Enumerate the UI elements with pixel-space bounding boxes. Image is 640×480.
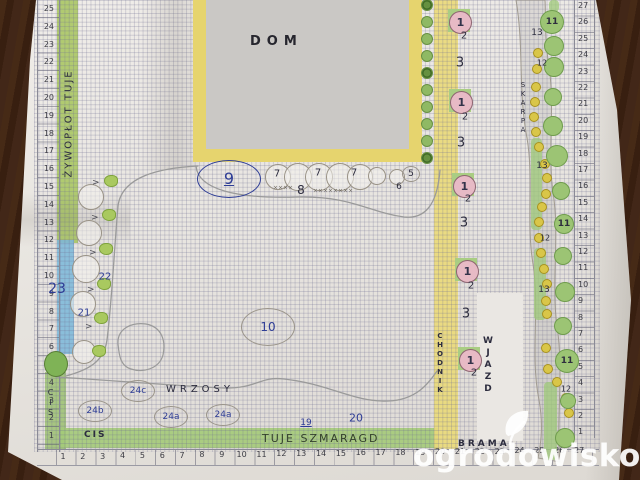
plan-annotation: 3 bbox=[457, 136, 465, 151]
left-ruler-number: 17 bbox=[38, 146, 54, 155]
plan-annotation: 19 bbox=[300, 418, 311, 428]
plant-blob bbox=[104, 175, 118, 187]
right-ruler-number: 25 bbox=[578, 34, 591, 43]
hedge-dot bbox=[421, 33, 433, 45]
skarpa-shrub bbox=[554, 247, 572, 265]
bottom-ruler-number: 12 bbox=[275, 449, 287, 458]
arrow-mark: > bbox=[91, 213, 99, 223]
skarpa-shrub bbox=[543, 116, 563, 136]
skarpa-dot bbox=[542, 309, 552, 319]
shrub-outline bbox=[368, 167, 386, 185]
plan-annotation: 20 bbox=[349, 412, 363, 425]
wrzosy-label: WRZOSY bbox=[166, 384, 234, 395]
plan-annotation: ×××××××× bbox=[313, 188, 353, 195]
skarpa-dot bbox=[533, 48, 543, 58]
bottom-ruler-number: 10 bbox=[236, 450, 248, 459]
plan-markers-layer: 2524232221201918171615141312111098765432… bbox=[0, 0, 640, 480]
plan-annotation: 7 bbox=[315, 168, 321, 179]
plan-annotation: 24a bbox=[206, 404, 240, 426]
left-ruler-number: 19 bbox=[38, 111, 54, 120]
right-ruler-number: 20 bbox=[578, 116, 591, 125]
right-ruler-number: 3 bbox=[578, 395, 591, 404]
shrub-outline bbox=[76, 220, 102, 246]
skarpa-shrub bbox=[544, 36, 564, 56]
plan-annotation: 12 bbox=[561, 385, 571, 394]
watermark-text: ogrodowisko bbox=[413, 438, 640, 474]
left-ruler-number: 8 bbox=[38, 307, 54, 316]
right-ruler-number: 4 bbox=[578, 378, 591, 387]
shrub-outline bbox=[72, 255, 100, 283]
skarpa-label: SKARPA bbox=[519, 81, 527, 135]
plan-annotation: 24c bbox=[121, 380, 155, 402]
skarpa-dot bbox=[536, 248, 546, 258]
right-ruler-number: 19 bbox=[578, 132, 591, 141]
skarpa-dot bbox=[564, 408, 574, 418]
left-ruler-number: 14 bbox=[38, 200, 54, 209]
right-ruler-number: 24 bbox=[578, 50, 591, 59]
skarpa-shrub bbox=[552, 182, 570, 200]
left-ruler-number: 18 bbox=[38, 129, 54, 138]
plant-blob bbox=[94, 312, 108, 324]
plan-annotation: 2 bbox=[461, 31, 467, 42]
cis-strip-label: CIS bbox=[84, 430, 106, 440]
skarpa-shrub: 11 bbox=[555, 349, 579, 373]
right-ruler-number: 8 bbox=[578, 313, 591, 322]
skarpa-dot bbox=[539, 264, 549, 274]
bottom-ruler-number: 17 bbox=[375, 448, 387, 457]
plan-annotation: 13 bbox=[538, 285, 549, 295]
plan-annotation: 2 bbox=[468, 281, 474, 292]
plant-blob bbox=[92, 345, 106, 357]
bottom-ruler-number: 14 bbox=[315, 449, 327, 458]
plan-annotation: 24a bbox=[154, 406, 188, 428]
arrow-mark: > bbox=[87, 285, 95, 295]
left-ruler-number: 20 bbox=[38, 93, 54, 102]
right-ruler-number: 21 bbox=[578, 99, 591, 108]
right-ruler-number: 18 bbox=[578, 149, 591, 158]
paper-sheet: DOM 252423222120191817161514131211109876… bbox=[0, 0, 640, 480]
hedge-dot bbox=[421, 135, 433, 147]
left-ruler-number: 13 bbox=[38, 218, 54, 227]
left-ruler-number: 12 bbox=[38, 235, 54, 244]
skarpa-dot bbox=[541, 189, 551, 199]
skarpa-shrub bbox=[546, 145, 568, 167]
bottom-ruler-number: 9 bbox=[216, 450, 228, 459]
plan-annotation: 23 bbox=[48, 281, 66, 297]
plan-annotation: 10 bbox=[241, 308, 295, 346]
shrub-outline bbox=[78, 184, 104, 210]
right-ruler-number: 2 bbox=[578, 411, 591, 420]
right-ruler-number: 9 bbox=[578, 296, 591, 305]
bottom-ruler-number: 7 bbox=[176, 451, 188, 460]
plant-blob bbox=[102, 209, 116, 221]
bottom-ruler-number: 13 bbox=[295, 449, 307, 458]
left-ruler-number: 10 bbox=[38, 271, 54, 280]
plan-annotation: 8 bbox=[297, 183, 305, 197]
left-ruler-number: 23 bbox=[38, 40, 54, 49]
photo-garden-plan: DOM 252423222120191817161514131211109876… bbox=[0, 0, 640, 480]
plan-annotation: 2 bbox=[471, 368, 477, 379]
plan-annotation: 7 bbox=[351, 168, 357, 179]
plan-annotation: 6 bbox=[396, 182, 402, 192]
cis-vertical-label: CIS bbox=[46, 388, 55, 418]
wjazd-label: WJAZD bbox=[483, 336, 493, 396]
hedge-dot bbox=[421, 50, 433, 62]
hedge-left-label: ŻYWOPŁOT TUJE bbox=[64, 39, 75, 209]
bottom-ruler-number: 4 bbox=[117, 451, 129, 460]
arrow-mark: > bbox=[85, 322, 93, 332]
skarpa-shrub bbox=[544, 88, 562, 106]
hedge-dot bbox=[421, 152, 433, 164]
plan-annotation: 3 bbox=[460, 216, 468, 231]
plan-annotation: 2 bbox=[462, 112, 468, 123]
left-ruler-number: 7 bbox=[38, 324, 54, 333]
left-ruler-number: 24 bbox=[38, 22, 54, 31]
skarpa-shrub bbox=[555, 282, 575, 302]
bottom-ruler-number: 18 bbox=[394, 448, 406, 457]
left-ruler-number: 16 bbox=[38, 164, 54, 173]
bottom-ruler-number: 15 bbox=[335, 449, 347, 458]
plan-annotation: 12 bbox=[540, 234, 550, 243]
chodnik-label: CHODNIK bbox=[436, 332, 444, 395]
left-ruler-number: 6 bbox=[38, 342, 54, 351]
left-ruler-number: 4 bbox=[38, 378, 54, 387]
plant-blob bbox=[99, 243, 113, 255]
hedge-dot bbox=[421, 84, 433, 96]
left-ruler-number: 22 bbox=[38, 57, 54, 66]
plan-annotation: 13 bbox=[536, 161, 547, 171]
plan-annotation: 3 bbox=[456, 56, 464, 71]
left-ruler-number: 21 bbox=[38, 75, 54, 84]
right-ruler-number: 13 bbox=[578, 231, 591, 240]
plan-annotation: 2 bbox=[465, 194, 471, 205]
plan-annotation: 9 bbox=[197, 160, 261, 198]
right-ruler-number: 7 bbox=[578, 329, 591, 338]
skarpa-dot bbox=[543, 364, 553, 374]
skarpa-dot bbox=[529, 112, 539, 122]
right-ruler-number: 10 bbox=[578, 280, 591, 289]
right-ruler-number: 12 bbox=[578, 247, 591, 256]
bottom-ruler-number: 1 bbox=[57, 452, 69, 461]
skarpa-shrub: 11 bbox=[554, 214, 574, 234]
right-ruler-number: 23 bbox=[578, 67, 591, 76]
green-bush bbox=[44, 351, 68, 377]
plan-annotation: 5 bbox=[402, 166, 420, 182]
skarpa-shrub: 11 bbox=[540, 10, 564, 34]
skarpa-dot bbox=[537, 202, 547, 212]
plan-annotation: 12 bbox=[537, 59, 547, 68]
bottom-ruler-number: 11 bbox=[256, 450, 268, 459]
skarpa-dot bbox=[531, 82, 541, 92]
skarpa-dot bbox=[541, 343, 551, 353]
skarpa-dot bbox=[542, 173, 552, 183]
bottom-ruler-number: 3 bbox=[97, 452, 109, 461]
plan-annotation: ×××× bbox=[273, 185, 293, 192]
right-ruler-number: 16 bbox=[578, 181, 591, 190]
left-ruler-number: 15 bbox=[38, 182, 54, 191]
hedge-dot bbox=[421, 118, 433, 130]
hedge-dot bbox=[421, 0, 433, 11]
left-ruler-number: 1 bbox=[38, 431, 54, 440]
hedge-dot bbox=[421, 16, 433, 28]
skarpa-shrub bbox=[560, 393, 576, 409]
skarpa-dot bbox=[530, 97, 540, 107]
arrow-mark: > bbox=[92, 178, 100, 188]
left-ruler-number: 11 bbox=[38, 253, 54, 262]
skarpa-shrub bbox=[554, 317, 572, 335]
plan-annotation: 24b bbox=[78, 400, 112, 422]
plan-annotation: 13 bbox=[531, 28, 542, 38]
skarpa-dot bbox=[534, 217, 544, 227]
skarpa-dot bbox=[534, 142, 544, 152]
right-ruler-number: 22 bbox=[578, 83, 591, 92]
right-ruler-number: 11 bbox=[578, 263, 591, 272]
bottom-ruler-number: 8 bbox=[196, 450, 208, 459]
skarpa-dot bbox=[531, 127, 541, 137]
bottom-ruler-number: 16 bbox=[355, 448, 367, 457]
plan-annotation: 3 bbox=[462, 307, 470, 322]
right-ruler-number: 5 bbox=[578, 362, 591, 371]
hedge-dot bbox=[421, 67, 433, 79]
bottom-ruler-number: 6 bbox=[156, 451, 168, 460]
skarpa-dot bbox=[541, 296, 551, 306]
watermark: ogrodowisko.pl bbox=[413, 438, 640, 474]
bottom-ruler-number: 5 bbox=[136, 451, 148, 460]
right-ruler-number: 26 bbox=[578, 17, 591, 26]
right-ruler-number: 1 bbox=[578, 427, 591, 436]
plan-annotation: 22 bbox=[99, 272, 112, 283]
hedge-dot bbox=[421, 101, 433, 113]
bottom-ruler-number: 2 bbox=[77, 452, 89, 461]
right-ruler-number: 6 bbox=[578, 345, 591, 354]
right-ruler-number: 15 bbox=[578, 198, 591, 207]
right-ruler-number: 17 bbox=[578, 165, 591, 174]
right-ruler-number: 14 bbox=[578, 214, 591, 223]
right-ruler-number: 27 bbox=[578, 1, 591, 10]
left-ruler-number: 25 bbox=[38, 4, 54, 13]
plan-annotation: 7 bbox=[274, 169, 280, 180]
arrow-mark: > bbox=[89, 248, 97, 258]
tuje-strip-label: TUJE SZMARAGD bbox=[262, 432, 380, 445]
plan-annotation: 21 bbox=[78, 308, 91, 319]
